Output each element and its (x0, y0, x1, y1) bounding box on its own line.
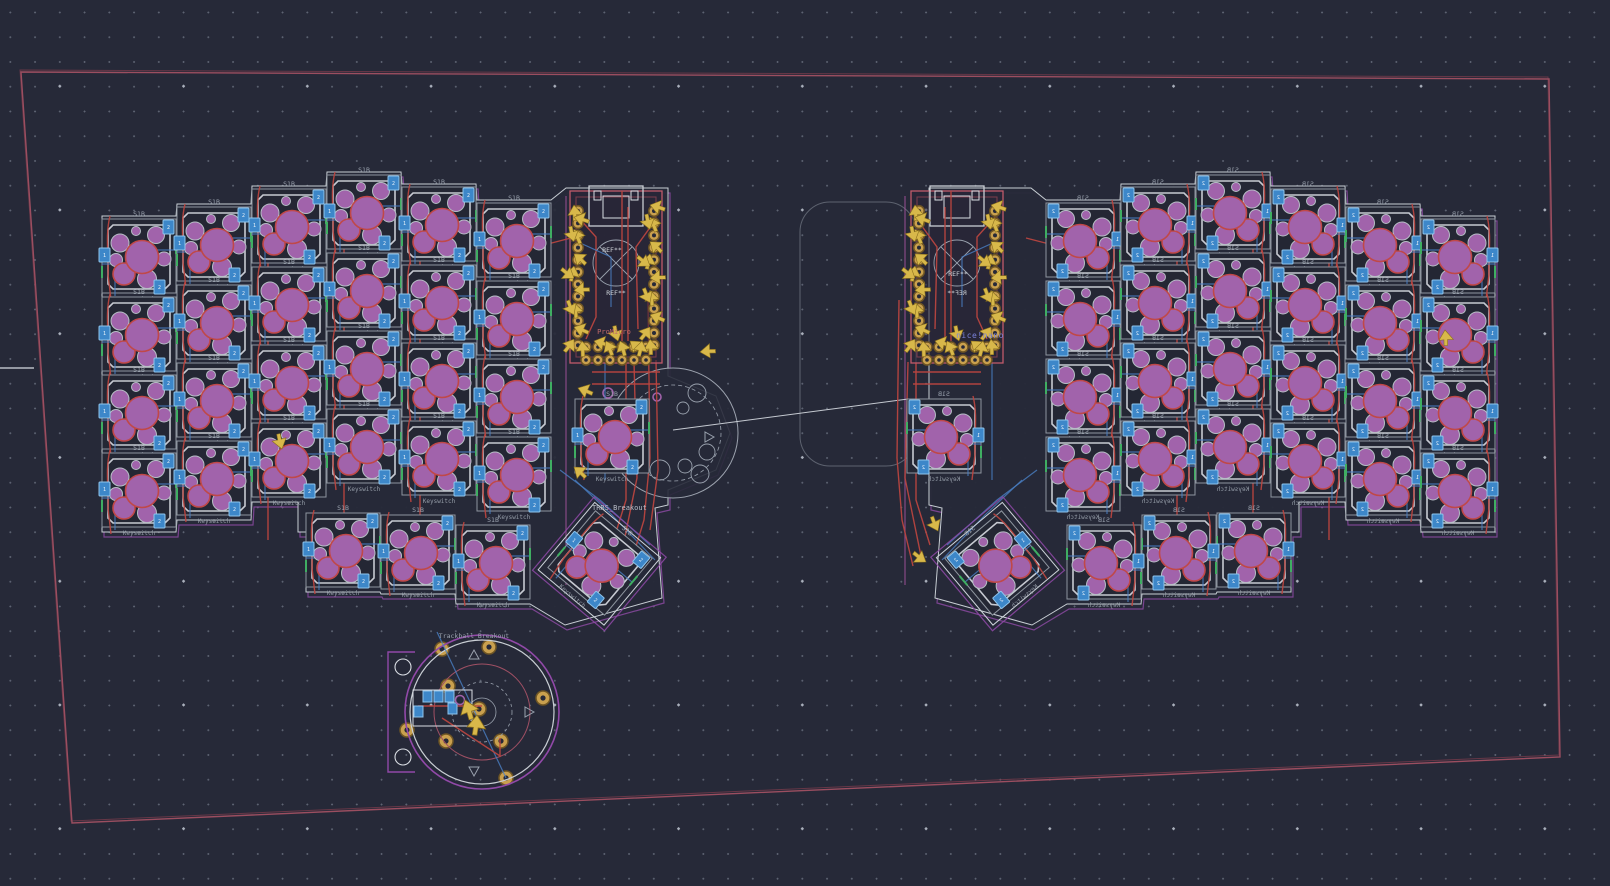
pcb-layout-drawing: 2 1 2 S1B Keyswitch (0, 0, 1610, 886)
key-footprint[interactable] (1196, 400, 1273, 493)
key-footprint[interactable] (1142, 506, 1219, 599)
key-footprint[interactable] (1046, 428, 1123, 521)
mcu-left-value-label: ProMicro (597, 328, 631, 336)
key-footprint[interactable] (303, 504, 380, 597)
mcu-left-ref-label: REF** (602, 246, 622, 254)
key-footprint[interactable] (324, 400, 401, 493)
key-footprint[interactable] (1421, 444, 1498, 537)
mcu-right-value-label: nice!nano (956, 331, 1004, 340)
key-footprint[interactable] (249, 414, 326, 507)
key-footprint[interactable] (1121, 412, 1198, 505)
key-footprint[interactable] (453, 516, 530, 609)
breakout-label: TRRS_Breakout (592, 504, 647, 512)
key-footprint[interactable] (399, 412, 476, 505)
key-footprint[interactable] (174, 432, 251, 525)
key-footprint[interactable] (1346, 432, 1423, 525)
keyswitch-footprints (99, 166, 1498, 631)
mcu-right-ref-label: REF** (948, 270, 968, 278)
key-footprint[interactable] (474, 428, 551, 521)
pcb-editor-canvas[interactable]: 2 1 2 S1B Keyswitch (0, 0, 1610, 886)
key-footprint[interactable] (378, 506, 455, 599)
key-footprint[interactable] (1067, 516, 1144, 609)
key-footprint[interactable] (1217, 504, 1294, 597)
key-footprint[interactable] (99, 444, 176, 537)
key-footprint[interactable] (1271, 414, 1348, 507)
key-footprint[interactable] (907, 390, 984, 483)
